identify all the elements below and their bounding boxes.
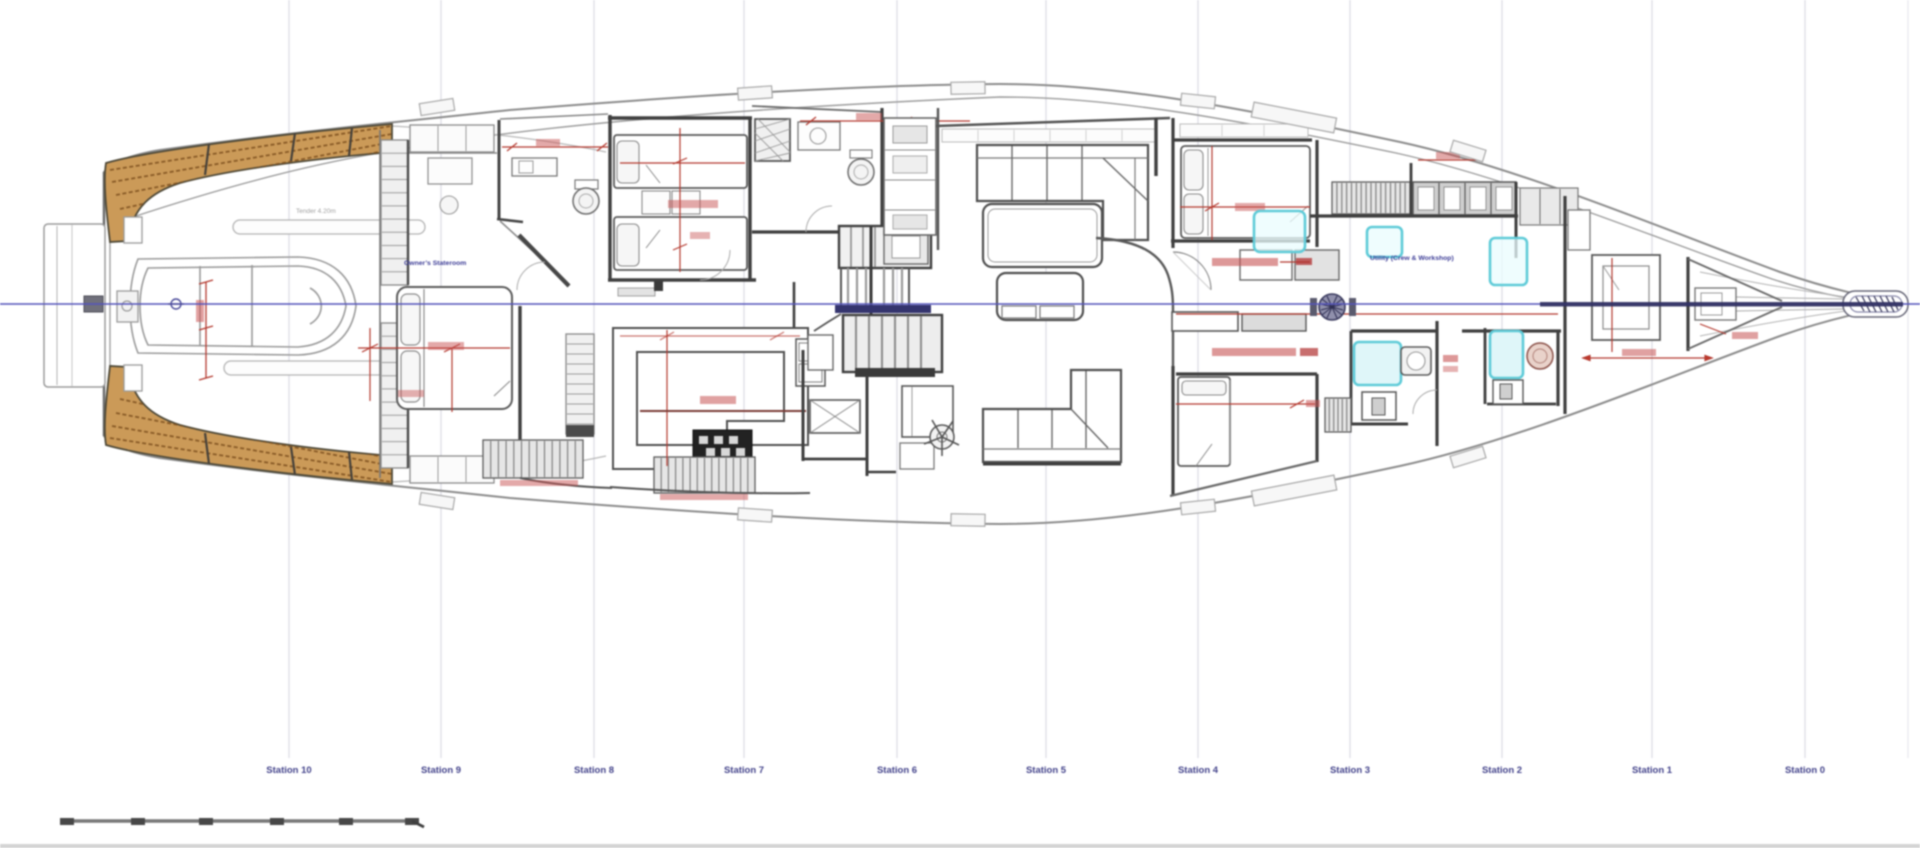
- svg-text:Station 0: Station 0: [1785, 765, 1825, 776]
- svg-text:Station 7: Station 7: [724, 765, 764, 776]
- svg-text:Station 10: Station 10: [266, 765, 311, 776]
- svg-text:Utility (Crew & Workshop): Utility (Crew & Workshop): [1370, 255, 1454, 262]
- svg-text:Station 6: Station 6: [877, 765, 917, 776]
- svg-text:Station 3: Station 3: [1330, 765, 1370, 776]
- svg-text:Station 8: Station 8: [574, 765, 614, 776]
- svg-text:Station 4: Station 4: [1178, 765, 1219, 776]
- svg-text:Station 9: Station 9: [421, 765, 461, 776]
- svg-text:Station 2: Station 2: [1482, 765, 1522, 776]
- svg-text:Station 1: Station 1: [1632, 765, 1673, 776]
- svg-text:Station 5: Station 5: [1026, 765, 1067, 776]
- svg-text:Owner’s Stateroom: Owner’s Stateroom: [404, 260, 466, 267]
- svg-text:Tender 4.20m: Tender 4.20m: [296, 208, 336, 215]
